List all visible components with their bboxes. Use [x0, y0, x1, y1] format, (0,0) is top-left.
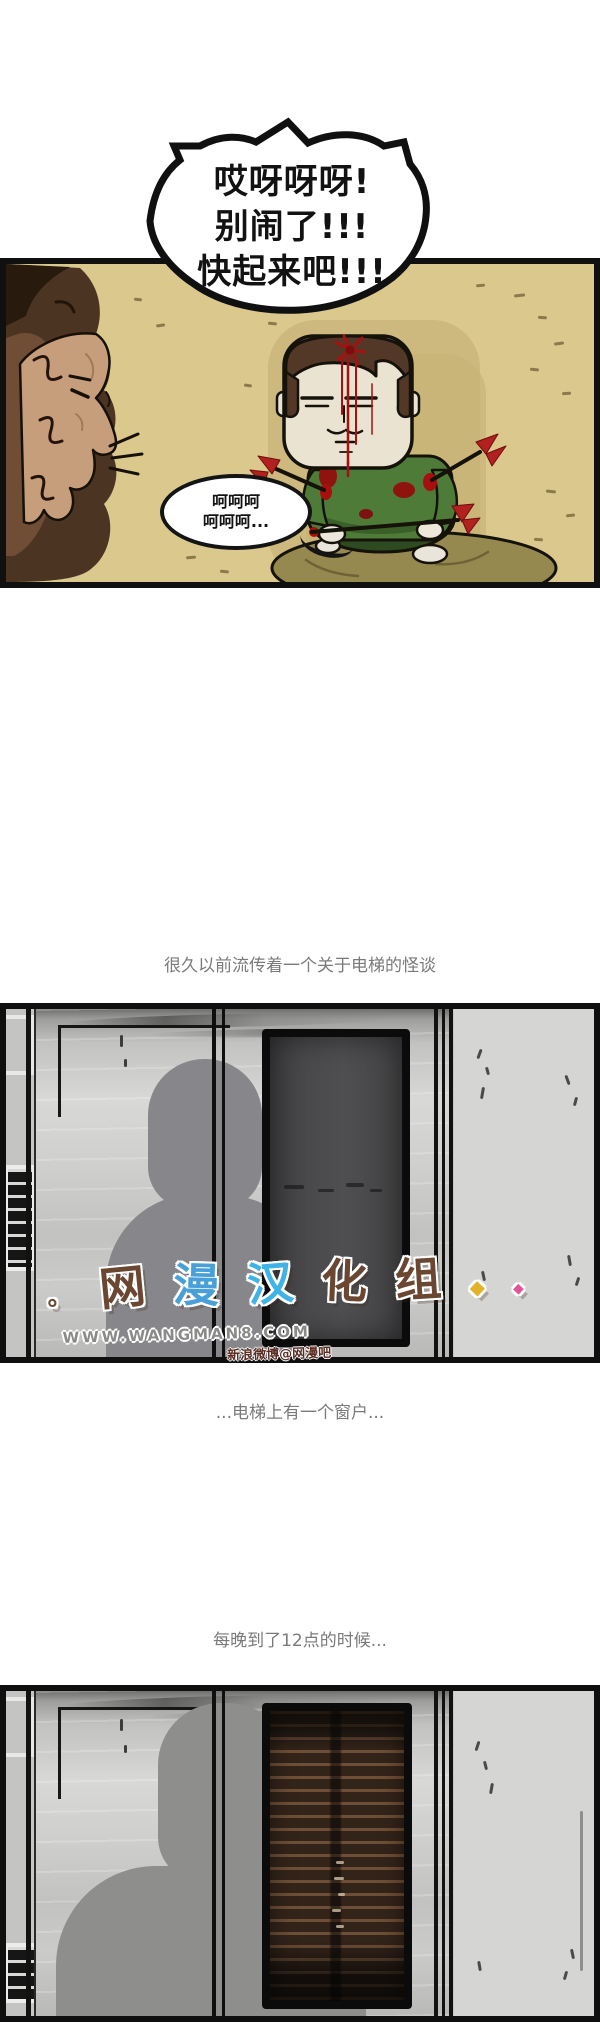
watermark-diamond: ◆: [469, 1261, 492, 1314]
door-top-edge: [58, 1025, 230, 1028]
watermark-logo: 。 网 漫 汉 化 组 ◆ ◆: [47, 1253, 449, 1327]
door-seam: [222, 1691, 225, 2016]
door-mark: [124, 1059, 127, 1067]
elevator-right-wall: [454, 1691, 594, 2016]
door-frame-line: [26, 1009, 31, 1357]
door-mark: [124, 1745, 127, 1753]
speech-line: 哎呀呀呀!: [142, 160, 442, 205]
elevator-call-panel: [4, 1165, 36, 1271]
wall-scratch: [480, 1087, 485, 1099]
door-seam: [212, 1691, 216, 2016]
door-mark: [120, 1719, 123, 1731]
door-track-line: [449, 1691, 453, 2016]
wall-line: [580, 1811, 583, 1971]
wall-scratch: [476, 1049, 482, 1059]
door-left-edge: [58, 1025, 61, 1117]
shadow-silhouette-head: [148, 1059, 262, 1209]
wall-scratch: [575, 1277, 581, 1286]
watermark-diamond: ◆: [512, 1263, 530, 1315]
door-track-line: [442, 1691, 445, 2016]
translation-group-watermark: 。 网 漫 汉 化 组 ◆ ◆ WWW.WANGMAN8.COM 新浪微博@网漫…: [47, 1253, 450, 1368]
elevator-window-lit: [262, 1703, 412, 2009]
wall-scratch: [564, 1075, 570, 1085]
wall-scratch: [573, 1097, 578, 1106]
window-glint: [334, 1877, 344, 1880]
window-glint: [336, 1861, 344, 1864]
window-glint: [336, 1925, 344, 1928]
door-frame-line: [26, 1691, 31, 2016]
door-mark: [120, 1035, 123, 1047]
wall-scratch: [570, 1949, 575, 1959]
small-bubble-line: 呵呵呵: [164, 492, 308, 512]
window-mark: [284, 1185, 304, 1189]
white-sock: [413, 545, 447, 563]
speech-bubble-text: 哎呀呀呀! 别闹了!!! 快起来吧!!!: [142, 160, 442, 295]
door-left-edge: [58, 1707, 61, 1799]
caption-midnight: 每晚到了12点的时候...: [0, 1630, 600, 1652]
wall-scratch: [489, 1783, 494, 1794]
caption-window: ...电梯上有一个窗户...: [0, 1402, 600, 1424]
panel-elevator-lit: [0, 1685, 600, 2022]
small-bubble-line: 呵呵呵...: [164, 512, 308, 532]
speech-line: 快起来吧!!!: [142, 250, 442, 295]
small-speech-bubble: 呵呵呵 呵呵呵...: [160, 474, 312, 550]
comic-page: 哎呀呀呀! 别闹了!!! 快起来吧!!! 呵呵呵 呵呵呵... 很久以前流传着一…: [0, 0, 600, 2040]
window-mark: [370, 1189, 382, 1192]
elevator-call-panel: [4, 1943, 38, 2003]
wall-scratch: [483, 1761, 488, 1770]
watermark-dot: 。: [47, 1270, 78, 1323]
window-mark: [318, 1189, 334, 1192]
wall-scratch: [563, 1971, 568, 1980]
window-glint: [332, 1909, 341, 1912]
wall-scratch: [475, 1741, 481, 1751]
wall-scratch: [485, 1067, 490, 1076]
caption-legend: 很久以前流传着一个关于电梯的怪谈: [0, 955, 600, 977]
window-glint: [338, 1893, 345, 1896]
speech-line: 别闹了!!!: [142, 205, 442, 250]
door-track-line: [434, 1691, 438, 2016]
wall-scratch: [567, 1255, 572, 1266]
left-character: [6, 264, 142, 582]
window-mark: [346, 1183, 364, 1187]
wall-scratch: [477, 1961, 482, 1971]
